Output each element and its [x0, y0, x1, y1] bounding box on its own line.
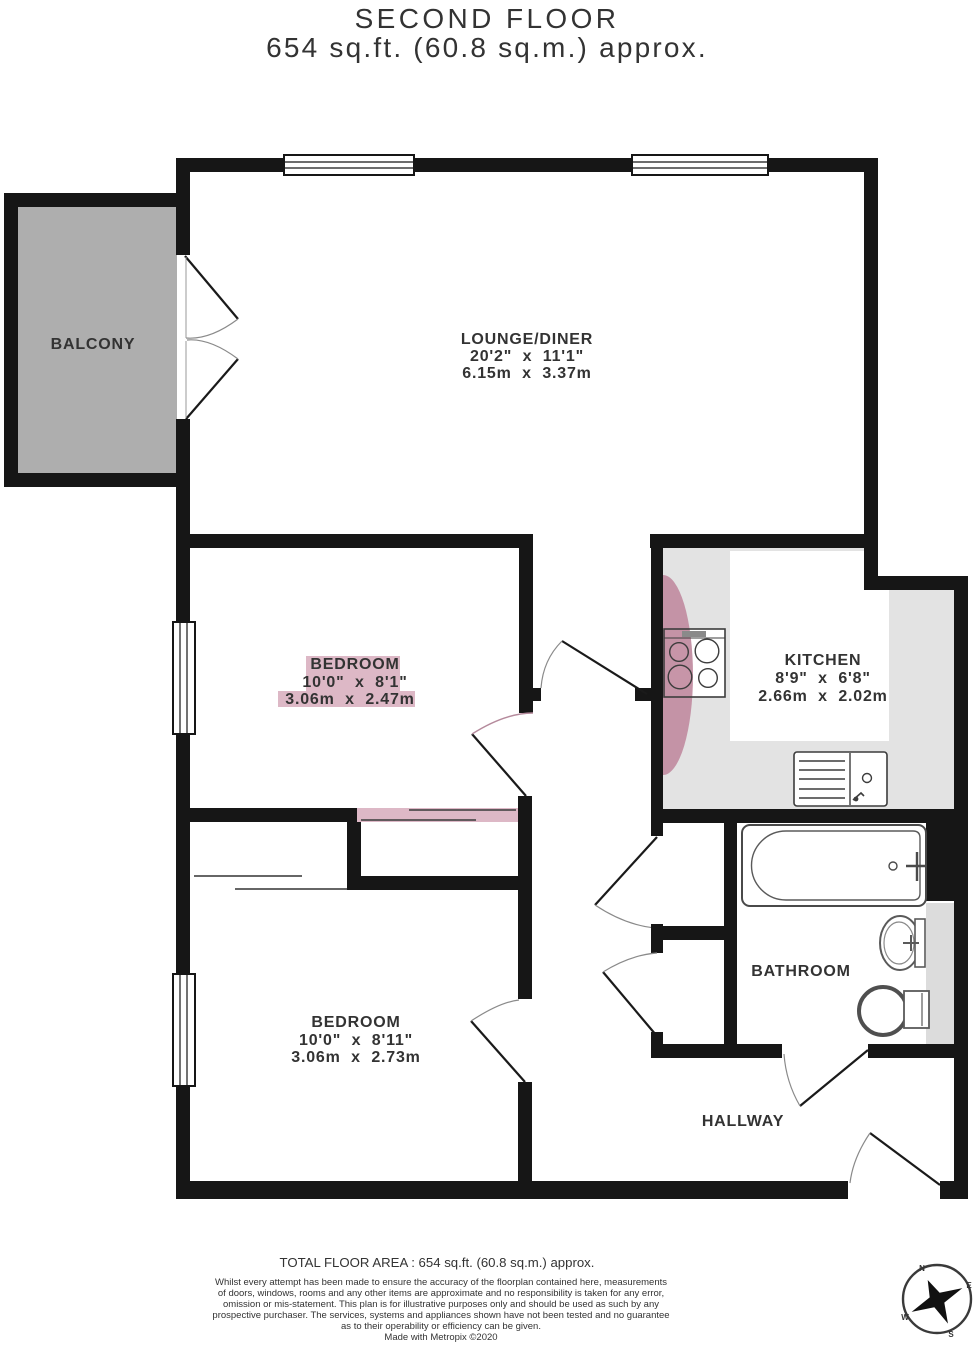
svg-text:10'0" x 8'1": 10'0" x 8'1" [302, 674, 407, 691]
svg-text:W: W [901, 1313, 909, 1322]
svg-text:3.06m x 2.47m: 3.06m x 2.47m [285, 691, 414, 708]
svg-text:KITCHEN: KITCHEN [785, 652, 862, 669]
svg-text:Made with Metropix ©2020: Made with Metropix ©2020 [384, 1332, 497, 1343]
svg-text:SECOND FLOOR: SECOND FLOOR [355, 3, 620, 34]
svg-text:HALLWAY: HALLWAY [702, 1113, 784, 1130]
svg-text:10'0" x 8'11": 10'0" x 8'11" [299, 1032, 413, 1049]
svg-text:LOUNGE/DINER: LOUNGE/DINER [461, 331, 593, 348]
svg-text:6.15m x 3.37m: 6.15m x 3.37m [462, 365, 591, 382]
svg-text:BEDROOM: BEDROOM [311, 1014, 400, 1031]
svg-text:omission or mis-statement. Thi: omission or mis-statement. This plan is … [223, 1299, 659, 1310]
svg-text:as to their operability or eff: as to their operability or efficiency ca… [341, 1321, 541, 1332]
svg-text:of doors, windows, rooms and a: of doors, windows, rooms and any other i… [218, 1288, 664, 1299]
svg-text:E: E [966, 1281, 972, 1290]
svg-text:BATHROOM: BATHROOM [751, 963, 850, 980]
svg-text:3.06m x 2.73m: 3.06m x 2.73m [291, 1049, 420, 1066]
svg-text:654 sq.ft. (60.8 sq.m.) approx: 654 sq.ft. (60.8 sq.m.) approx. [266, 32, 708, 63]
svg-text:8'9" x 6'8": 8'9" x 6'8" [775, 670, 870, 687]
svg-text:2.66m x 2.02m: 2.66m x 2.02m [758, 688, 887, 705]
svg-text:N: N [919, 1264, 925, 1273]
svg-text:BALCONY: BALCONY [51, 336, 136, 353]
svg-text:Whilst every attempt has been: Whilst every attempt has been made to en… [215, 1277, 667, 1288]
svg-text:TOTAL FLOOR AREA : 654 sq.ft.: TOTAL FLOOR AREA : 654 sq.ft. (60.8 sq.m… [280, 1255, 595, 1270]
svg-text:BEDROOM: BEDROOM [310, 656, 399, 673]
svg-text:S: S [948, 1330, 954, 1339]
svg-text:prospective purchaser. The ser: prospective purchaser. The services, sys… [212, 1310, 669, 1321]
svg-text:20'2" x 11'1": 20'2" x 11'1" [470, 348, 584, 365]
